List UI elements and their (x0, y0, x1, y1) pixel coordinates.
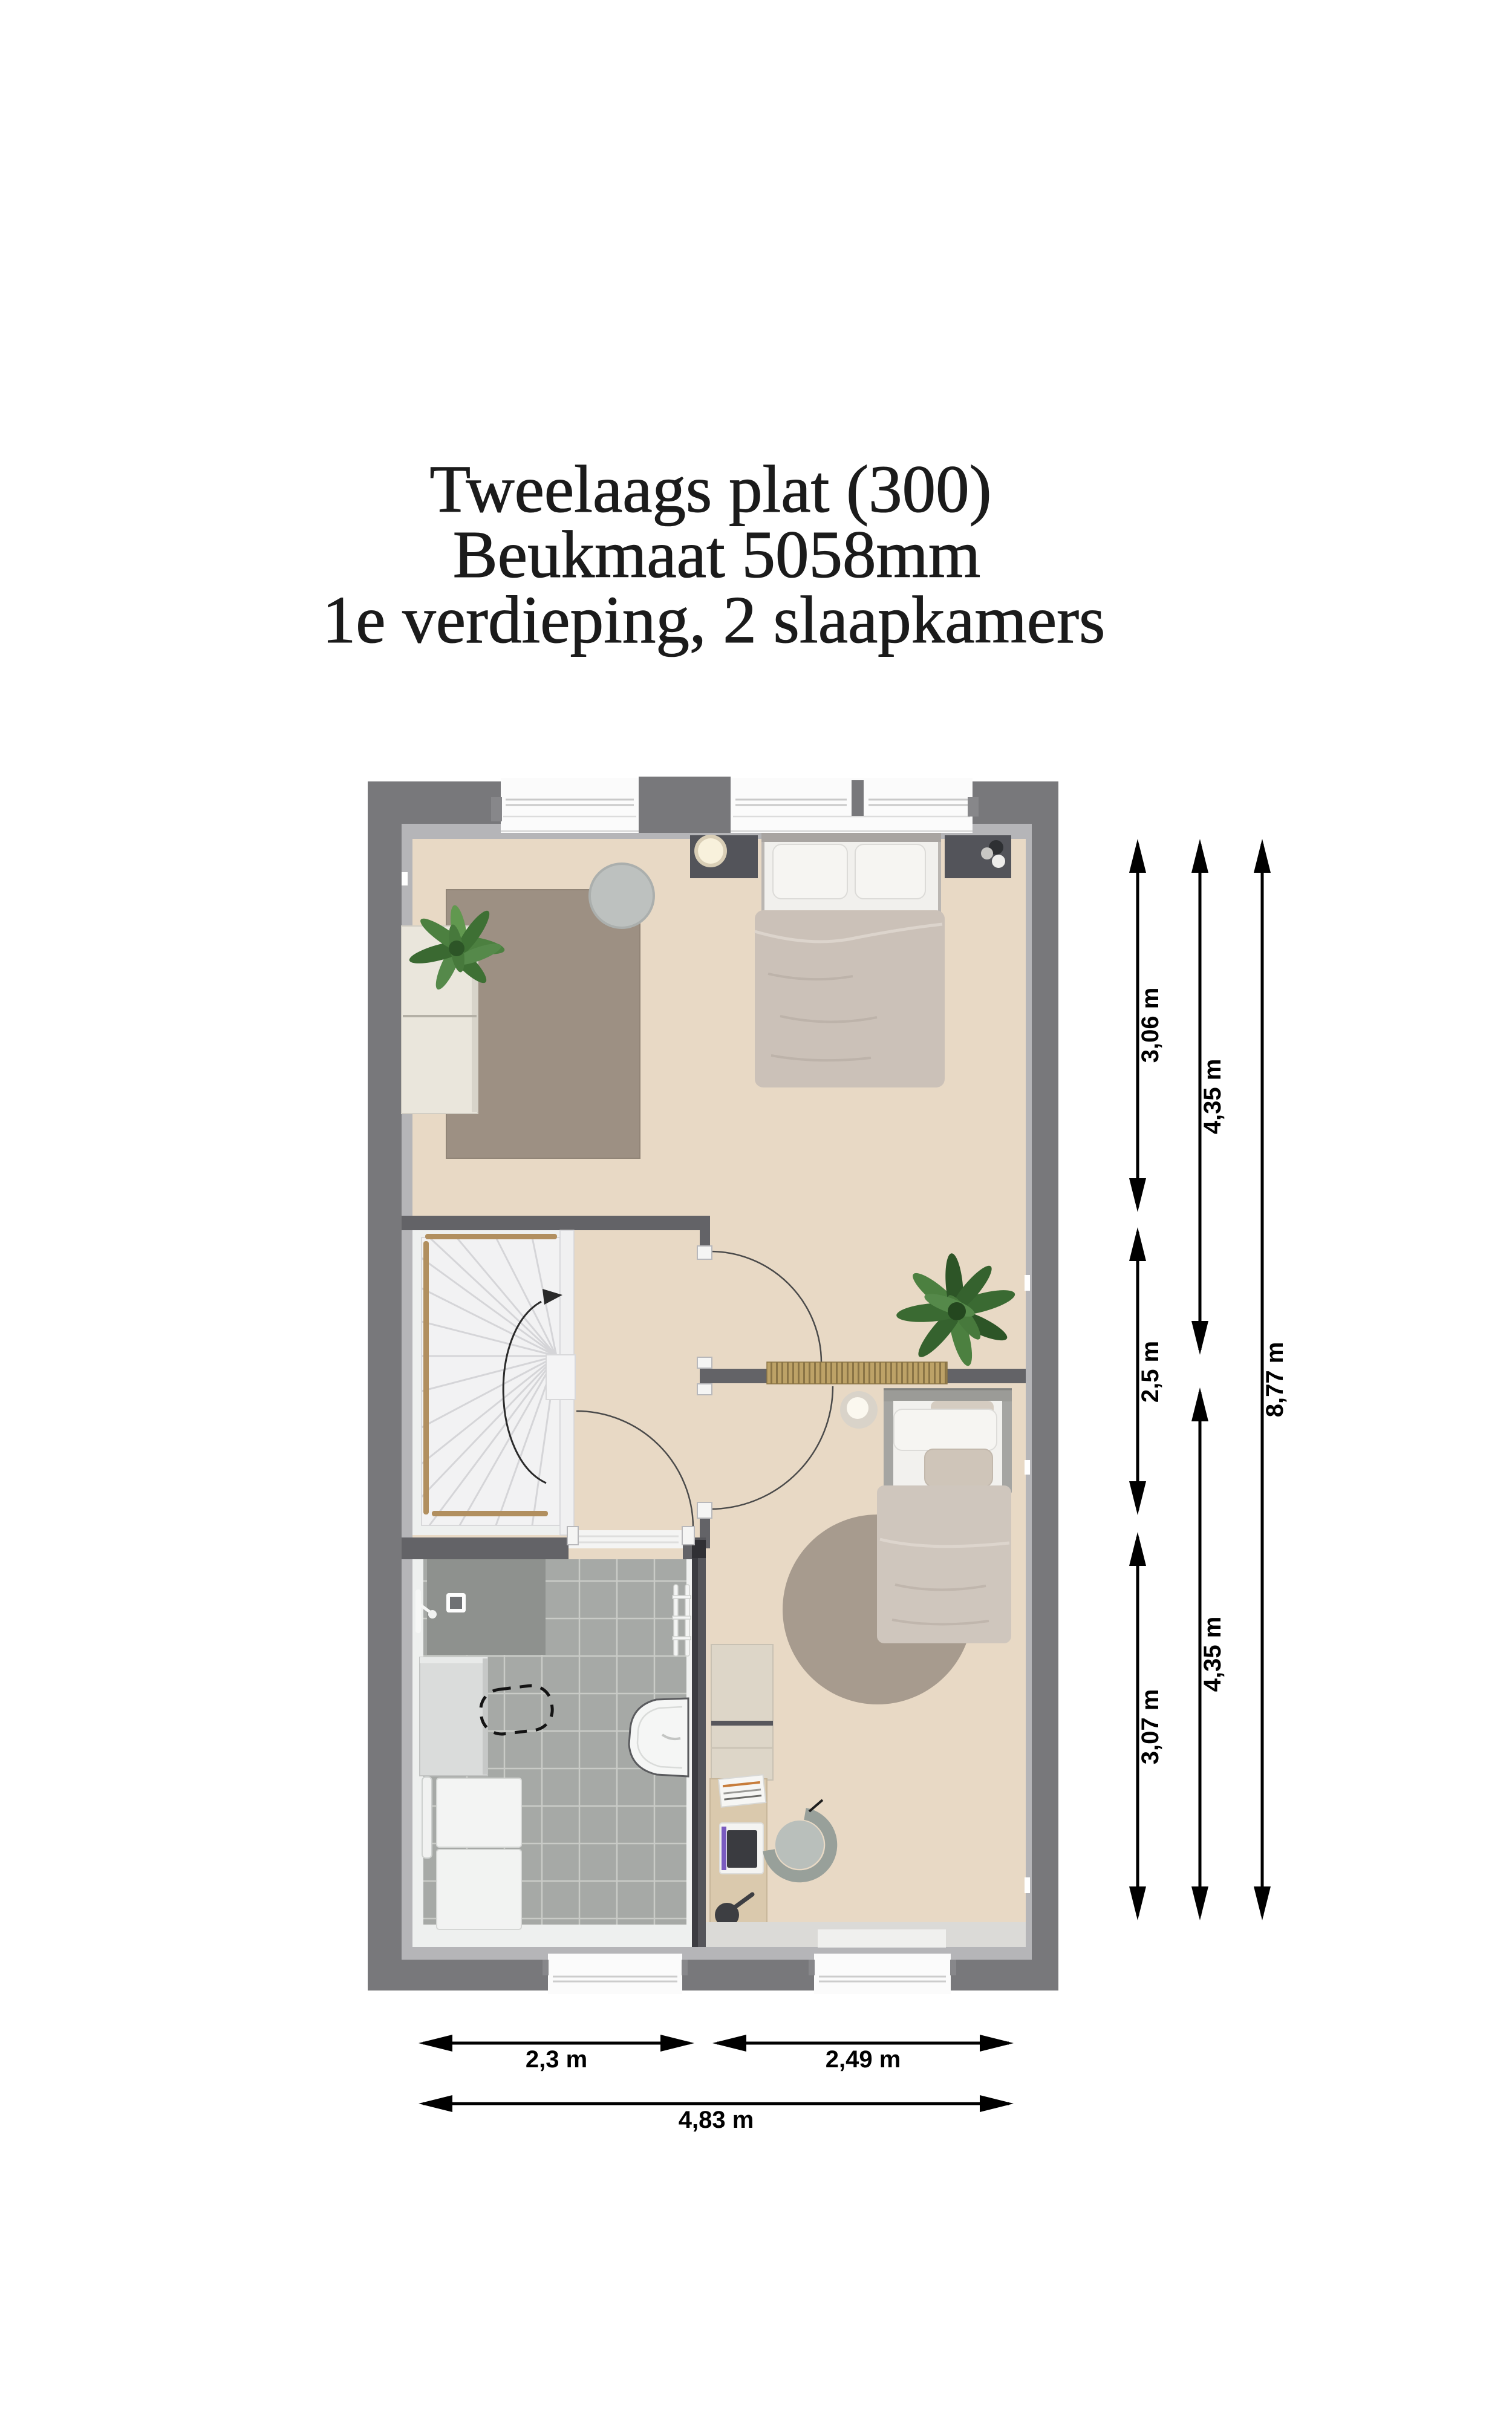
svg-text:4,35 m: 4,35 m (1199, 1059, 1226, 1135)
svg-text:Tweelaags plat (300): Tweelaags plat (300) (429, 452, 991, 527)
svg-text:2,5 m: 2,5 m (1137, 1341, 1164, 1403)
svg-text:Beukmaat 5058mm: Beukmaat 5058mm (453, 518, 980, 592)
svg-text:4,83 m: 4,83 m (679, 2107, 754, 2133)
svg-text:2,3 m: 2,3 m (526, 2046, 587, 2073)
svg-text:4,35 m: 4,35 m (1199, 1617, 1226, 1692)
svg-text:3,06 m: 3,06 m (1137, 988, 1164, 1063)
svg-text:2,49 m: 2,49 m (826, 2046, 901, 2073)
svg-text:1e verdieping, 2 slaapkamers: 1e verdieping, 2 slaapkamers (322, 583, 1106, 657)
svg-text:3,07 m: 3,07 m (1137, 1689, 1164, 1765)
svg-text:8,77 m: 8,77 m (1262, 1342, 1288, 1418)
